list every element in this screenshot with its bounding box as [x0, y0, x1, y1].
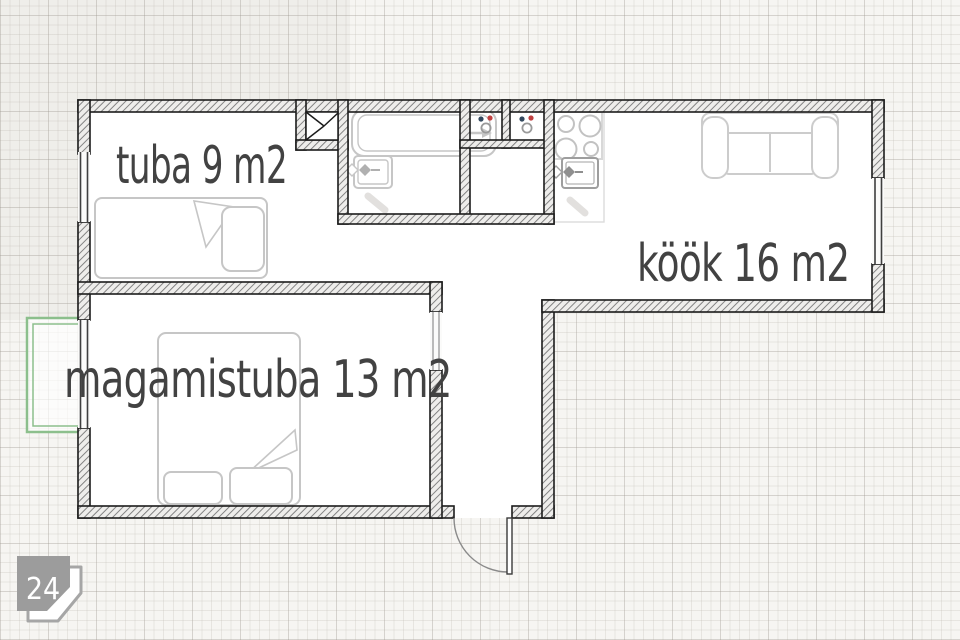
window-tuba	[78, 152, 90, 222]
wall-segment	[430, 282, 442, 312]
bathtub-icon	[352, 110, 496, 156]
sofa-icon	[702, 113, 838, 178]
wall-segment	[460, 100, 470, 224]
wall-segment	[78, 282, 442, 294]
wall-segment	[78, 100, 90, 154]
badge-number: 24	[26, 572, 60, 607]
wall-segment	[872, 100, 884, 178]
wall-segment	[542, 300, 884, 312]
ventilation-shaft-icon	[306, 112, 338, 140]
badge-24: 24	[17, 556, 81, 621]
wall-segment	[78, 428, 90, 518]
wall-segment	[872, 264, 884, 312]
room-label-tuba: tuba 9 m2	[116, 140, 287, 192]
room-label-magamistuba: magamistuba 13 m2	[64, 354, 452, 406]
wall-segment	[78, 222, 90, 320]
window-kook	[872, 178, 884, 264]
room-label-kook: köök 16 m2	[637, 238, 849, 290]
wall-segment	[78, 100, 884, 112]
wall-segment	[544, 100, 554, 224]
wall-segment	[460, 140, 554, 148]
floor-plan-drawing: 24	[0, 0, 960, 640]
floor-plan: 24 tuba 9 m2 köök 16 m2 magamistuba 13 m…	[0, 0, 960, 640]
wall-segment	[542, 300, 554, 518]
wall-segment	[338, 100, 348, 224]
wall-segment	[78, 506, 454, 518]
single-bed-icon	[95, 198, 267, 278]
wall-segment	[338, 214, 554, 224]
entrance-door	[454, 518, 512, 574]
